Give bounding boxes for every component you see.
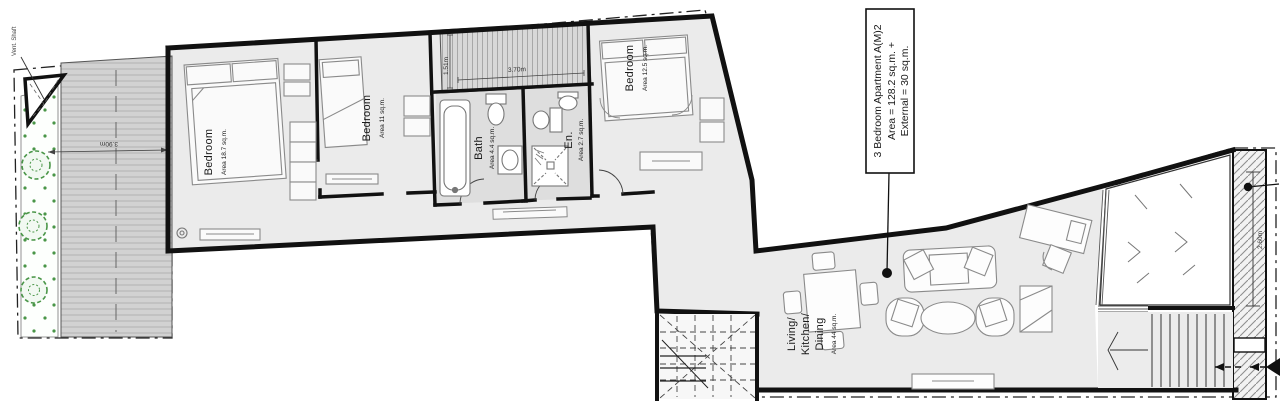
coffee-table-symbol <box>921 302 975 334</box>
bedroom2-area: Area 11 sq.m. <box>379 98 386 138</box>
hall-radiator <box>493 207 567 220</box>
bed-symbol <box>184 59 286 185</box>
bedroom1-area: Area 18.7 sq.m. <box>221 129 228 175</box>
callout-line3: External = 30 sq.m. <box>899 46 911 137</box>
cabinet-symbol <box>404 96 430 136</box>
wardrobe-symbol <box>700 98 724 142</box>
shower-symbol <box>532 146 568 186</box>
vent-shaft-label: Vent. Shaft <box>12 26 18 56</box>
bedroom1-name: Bedroom <box>203 129 215 176</box>
living-name-2: Kitchen/ <box>800 312 812 355</box>
bath-area: Area 4.4 sq.m. <box>489 127 496 169</box>
sink-symbol <box>498 146 522 174</box>
party-wall <box>1233 150 1279 399</box>
bath-name: Bath <box>473 136 485 160</box>
living-area: Area 44 sq.m. <box>831 314 838 355</box>
ensuite-area: Area 2.7 sq.m. <box>578 119 585 161</box>
corner-sink-symbol <box>558 92 578 110</box>
floor-plan-canvas: 3.90m Vent. Shaft 1.51m 3.70m <box>0 0 1280 403</box>
callout-line1: 3 Bedroom Apartment A(M)2 <box>872 24 884 157</box>
radiator-symbol <box>326 174 378 184</box>
terrace-width-dim: 3.70m <box>508 66 526 74</box>
planting-strip <box>19 86 58 337</box>
single-bed-symbol <box>319 57 367 148</box>
stairwell-right <box>1098 312 1233 388</box>
sofa-symbol <box>903 246 997 293</box>
floor-plan-page: 3.90m Vent. Shaft 1.51m 3.70m <box>0 0 1280 403</box>
arrowhead-icon <box>1266 358 1280 376</box>
tv-unit-symbol <box>912 374 994 389</box>
deck-width-dim: 3.90m <box>100 140 118 147</box>
deck-terrace: 3.90m <box>48 56 172 337</box>
callout-line2: Area = 128.2 sq.m. + <box>886 42 898 140</box>
radiator-symbol <box>200 229 260 240</box>
lightwell <box>1096 155 1230 312</box>
living-name-3: Dining <box>814 318 826 351</box>
bedroom2-name: Bedroom <box>361 95 373 142</box>
toilet-symbol <box>486 94 506 125</box>
leader-dot <box>882 268 892 278</box>
bedroom3-name: Bedroom <box>624 45 636 92</box>
bathtub-symbol <box>440 100 470 196</box>
terrace-depth-dim: 1.51m <box>443 57 450 75</box>
ensuite-name: En. <box>563 131 575 148</box>
shelf-symbol <box>1020 286 1052 332</box>
wardrobe-symbol <box>290 122 316 200</box>
stairwell-mid <box>659 314 755 399</box>
nightstand-symbol <box>284 64 310 96</box>
lightwell-depth-dim: 2.60m <box>1257 231 1264 249</box>
living-name-1: Living/ <box>786 316 798 351</box>
bedroom3-area: Area 12.5 sq.m. <box>642 45 649 91</box>
dresser-symbol <box>640 152 702 170</box>
